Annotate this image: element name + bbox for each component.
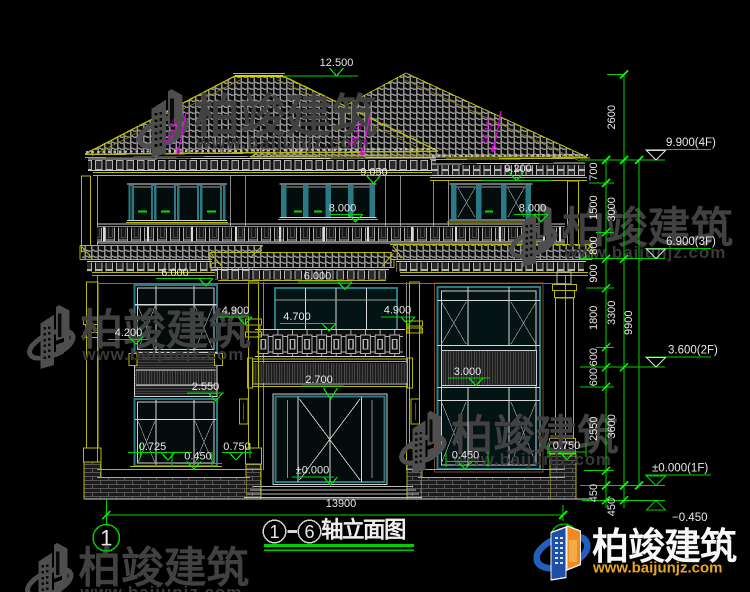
svg-text:3000: 3000 bbox=[606, 197, 618, 221]
svg-text:±0.000: ±0.000 bbox=[296, 465, 330, 477]
svg-text:9.200: 9.200 bbox=[504, 163, 532, 175]
svg-text:1800: 1800 bbox=[588, 306, 600, 330]
svg-text:6.000: 6.000 bbox=[304, 271, 332, 283]
svg-text:3300: 3300 bbox=[606, 301, 618, 325]
svg-text:±0.000(1F): ±0.000(1F) bbox=[652, 463, 708, 475]
svg-text:6.900(3F): 6.900(3F) bbox=[666, 236, 716, 248]
svg-text:0.750: 0.750 bbox=[553, 440, 581, 452]
svg-text:900: 900 bbox=[588, 264, 600, 282]
svg-text:−0.450: −0.450 bbox=[672, 512, 708, 524]
svg-text:3.000: 3.000 bbox=[454, 366, 482, 378]
svg-text:4.900: 4.900 bbox=[222, 305, 250, 317]
svg-text:2550: 2550 bbox=[588, 416, 600, 440]
svg-text:1: 1 bbox=[269, 522, 279, 542]
svg-text:800: 800 bbox=[588, 236, 600, 254]
svg-text:2600: 2600 bbox=[606, 105, 618, 129]
svg-text:轴立面图: 轴立面图 bbox=[321, 517, 406, 543]
svg-text:www.baijunjz.com: www.baijunjz.com bbox=[592, 560, 722, 577]
svg-text:2.550: 2.550 bbox=[192, 381, 220, 393]
svg-text:4.700: 4.700 bbox=[283, 311, 311, 323]
svg-text:3.600(2F): 3.600(2F) bbox=[668, 344, 718, 356]
svg-text:6: 6 bbox=[304, 522, 314, 542]
svg-text:1: 1 bbox=[100, 526, 112, 551]
svg-text:9900: 9900 bbox=[623, 310, 635, 334]
svg-text:3600: 3600 bbox=[606, 414, 618, 438]
svg-text:0.450: 0.450 bbox=[184, 451, 212, 463]
svg-text:0.750: 0.750 bbox=[223, 441, 251, 453]
svg-text:700: 700 bbox=[588, 162, 600, 180]
svg-text:4.200: 4.200 bbox=[115, 327, 143, 339]
svg-text:1500: 1500 bbox=[588, 195, 600, 219]
svg-text:600: 600 bbox=[588, 368, 600, 386]
svg-text:12.500: 12.500 bbox=[320, 57, 354, 69]
svg-text:8.000: 8.000 bbox=[329, 203, 357, 215]
svg-text:0.725: 0.725 bbox=[139, 441, 167, 453]
svg-text:600: 600 bbox=[588, 348, 600, 366]
svg-text:9.050: 9.050 bbox=[360, 167, 388, 179]
svg-text:450: 450 bbox=[588, 484, 600, 502]
svg-text:13900: 13900 bbox=[326, 498, 357, 510]
svg-text:0.450: 0.450 bbox=[452, 450, 480, 462]
svg-text:6.000: 6.000 bbox=[161, 267, 189, 279]
svg-text:2.700: 2.700 bbox=[305, 374, 333, 386]
svg-text:8.000: 8.000 bbox=[519, 203, 547, 215]
svg-text:4.900: 4.900 bbox=[384, 305, 412, 317]
svg-text:450: 450 bbox=[606, 498, 618, 516]
svg-text:9.900(4F): 9.900(4F) bbox=[666, 137, 716, 149]
